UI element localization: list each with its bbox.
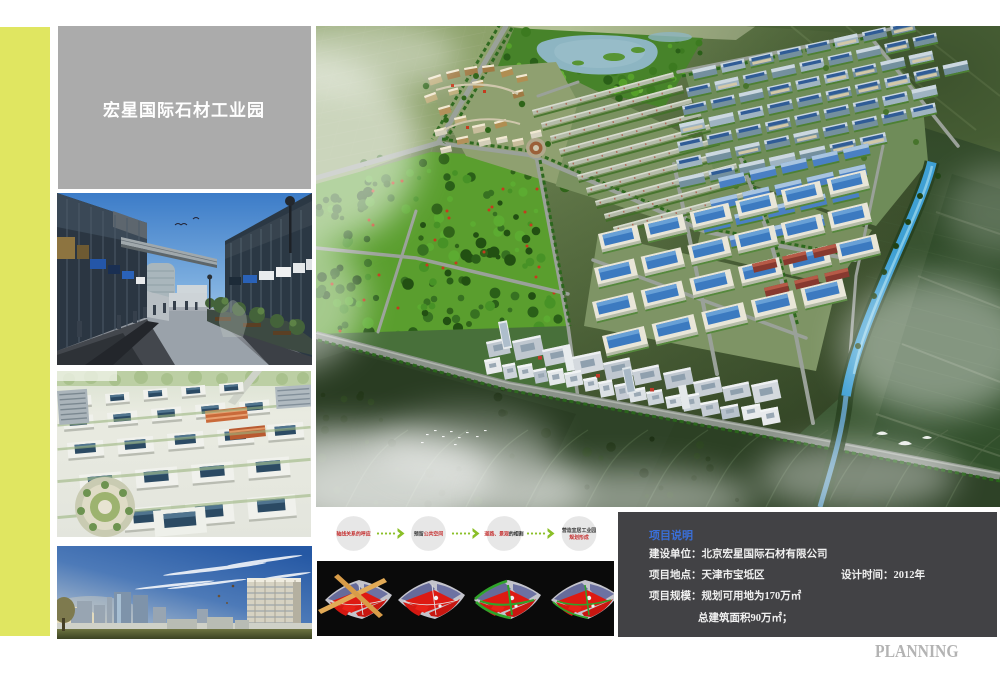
- svg-text:营造宜居工业园: 营造宜居工业园: [562, 527, 596, 534]
- svg-text:道路、景观的相割: 道路、景观的相割: [484, 531, 523, 538]
- svg-text:轴线关系的呼应: 轴线关系的呼应: [336, 531, 370, 538]
- svg-text:规划形成: 规划形成: [569, 534, 589, 541]
- svg-text:预留公共空间: 预留公共空间: [414, 531, 443, 538]
